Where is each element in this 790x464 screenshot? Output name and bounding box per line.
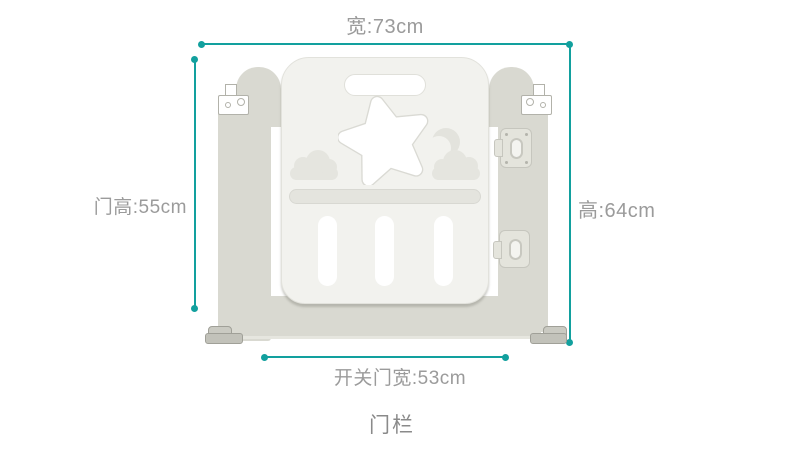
upper-latch	[500, 128, 532, 168]
left-hinge-bracket	[217, 83, 250, 115]
dimension-endpoint-dot	[261, 354, 268, 361]
cloud-icon	[288, 150, 340, 182]
lower-latch	[499, 230, 530, 268]
slat-cutout	[318, 216, 337, 286]
right-hinge-bracket	[520, 83, 553, 115]
door-height-dimension-line	[194, 59, 196, 308]
product-caption: 门栏	[292, 409, 492, 439]
width-dimension-label: 宽:73cm	[285, 10, 485, 39]
dimension-endpoint-dot	[198, 41, 205, 48]
left-foot	[205, 324, 244, 345]
cloud-icon	[430, 150, 482, 182]
dimension-endpoint-dot	[191, 56, 198, 63]
handle-cutout	[344, 74, 426, 96]
width-dimension-line	[201, 43, 570, 45]
height-dimension-label: 高:64cm	[578, 194, 688, 223]
star-cutout-icon	[338, 95, 432, 185]
door-width-dimension-line	[264, 356, 506, 358]
right-foot	[530, 324, 568, 345]
dimension-endpoint-dot	[502, 354, 509, 361]
door-height-dimension-label: 门高:55cm	[90, 192, 187, 219]
dimension-endpoint-dot	[191, 305, 198, 312]
door-rail	[289, 189, 481, 204]
slat-cutout	[375, 216, 394, 286]
gate-door-panel	[281, 57, 489, 304]
slat-cutout	[434, 216, 453, 286]
product-dimension-diagram: 宽:73cm 门高:55cm 高:64cm 开关门宽:53cm 门栏	[0, 0, 790, 464]
door-width-dimension-label: 开关门宽:53cm	[300, 363, 500, 390]
height-dimension-line	[569, 44, 571, 342]
